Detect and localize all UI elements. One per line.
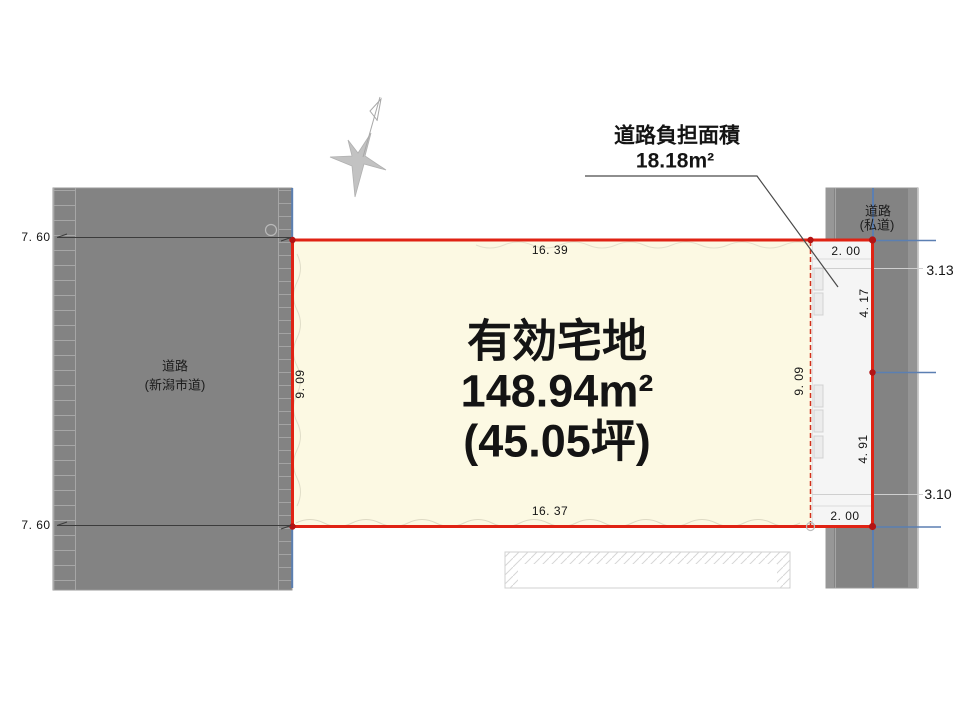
hatch-area (505, 552, 790, 588)
left-road-curb-left (53, 189, 76, 589)
dim-parcel-top: 16. 39 (532, 244, 568, 256)
dim-parcel-right: 9. 09 (793, 366, 805, 395)
left-road-type: (新潟市道) (145, 379, 206, 392)
dim-offset-upper: 3.13 (926, 263, 953, 277)
north-arrow-icon (330, 97, 386, 197)
parcel-area-tsubo: (45.05坪) (463, 419, 651, 464)
parcel-area-sqm: 148.94m² (461, 369, 654, 414)
dim-burden-bottom: 2. 00 (830, 510, 859, 522)
dim-parcel-bottom: 16. 37 (532, 505, 568, 517)
dim-parcel-left: 9. 09 (294, 369, 306, 398)
dim-road-width-bottom: 7. 60 (21, 519, 50, 531)
site-plan: 道路負担面積 18.18m² 有効宅地 148.94m² (45.05坪) 道路… (0, 0, 960, 719)
burden-annotation-value: 18.18m² (636, 151, 714, 172)
left-road-curb-right (278, 189, 292, 589)
road-burden-strip (811, 240, 873, 527)
right-road-name: 道路 (865, 205, 891, 218)
dim-road-width-top: 7. 60 (21, 231, 50, 243)
right-road-type: (私道) (860, 219, 895, 232)
dim-burden-upper: 4. 17 (858, 288, 870, 317)
left-road-name: 道路 (162, 360, 188, 373)
parcel-label: 有効宅地 (467, 319, 647, 364)
dim-burden-top: 2. 00 (831, 245, 860, 257)
dim-offset-lower: 3.10 (924, 487, 951, 501)
dim-burden-lower: 4. 91 (857, 434, 869, 463)
burden-annotation-title: 道路負担面積 (614, 126, 740, 147)
